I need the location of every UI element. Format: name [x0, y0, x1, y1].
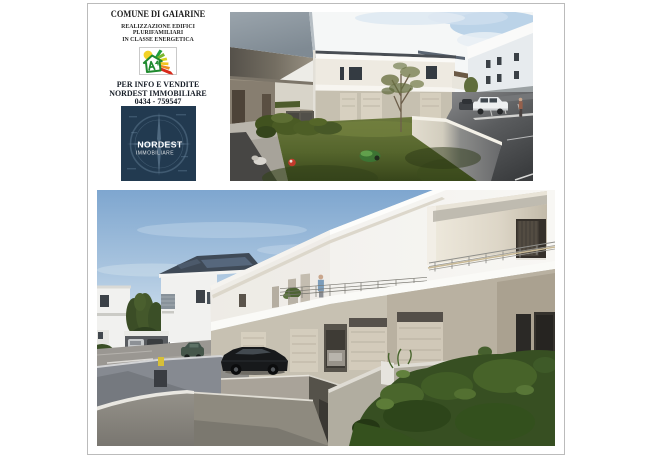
svg-text:IMMOBILIARE: IMMOBILIARE	[136, 151, 174, 157]
svg-text:NORDEST: NORDEST	[137, 140, 183, 150]
